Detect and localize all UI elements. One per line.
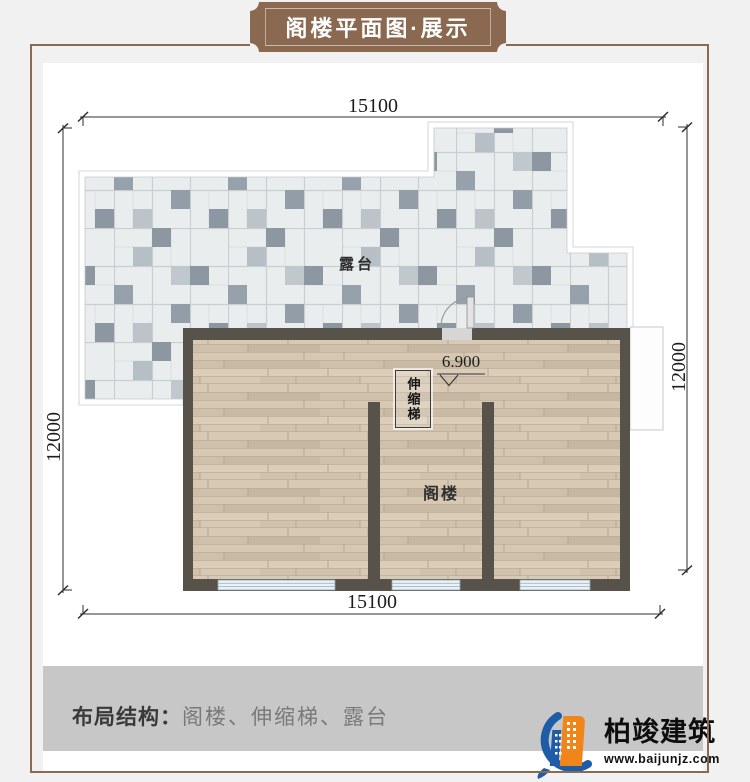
attic-label: 阁楼 (391, 480, 491, 504)
brand-name: 柏竣建筑 (604, 710, 714, 749)
frame-bottom-line (30, 771, 709, 773)
side-annex-outline (630, 327, 663, 430)
layout-structure-line: 布局结构：阁楼、伸缩梯、露台 (72, 701, 389, 731)
dimension-top-label: 15100 (310, 95, 436, 118)
terrace-label: 露台 (317, 253, 397, 274)
brand-texts: 柏竣建筑 www.baijunjz.com (604, 710, 714, 766)
brand-logo: 柏竣建筑 www.baijunjz.com (534, 700, 714, 780)
layout-structure-items: 阁楼、伸缩梯、露台 (182, 706, 389, 729)
page-title: 阁楼平面图·展示 (250, 2, 506, 52)
retractable-ladder-label: 伸缩梯 (407, 377, 420, 422)
door-opening (442, 328, 472, 340)
partition-wall-left (368, 402, 380, 579)
frame-right-line (707, 44, 709, 773)
elevation-value-label: 6.900 (411, 352, 511, 372)
building-logo-icon (534, 706, 600, 780)
window-2 (392, 580, 460, 590)
brand-website: www.baijunjz.com (604, 752, 714, 766)
retractable-ladder-box: 伸缩梯 (395, 370, 431, 428)
frame-left-line (30, 44, 32, 773)
dimension-left-label: 12000 (43, 372, 63, 502)
window-3 (520, 580, 590, 590)
page: 15100 15100 12000 12000 露台 阁楼 6.900 伸缩梯 … (0, 0, 750, 782)
dimension-bottom-label: 15100 (309, 591, 435, 614)
title-banner: 阁楼平面图·展示 (250, 2, 506, 52)
door-leaf (467, 297, 474, 328)
dimension-right-label: 12000 (668, 302, 688, 432)
layout-structure-label: 布局结构： (72, 706, 182, 729)
window-1 (218, 580, 335, 590)
